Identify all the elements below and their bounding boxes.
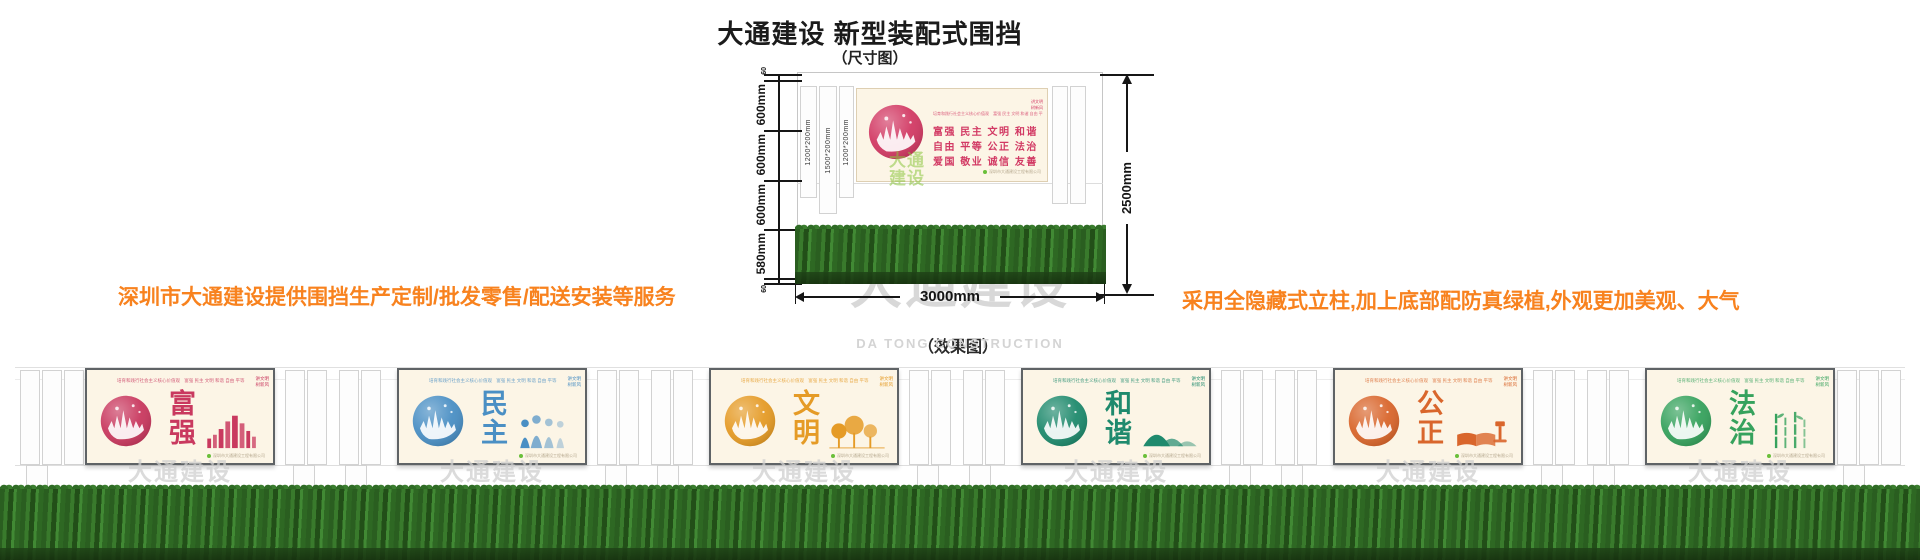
mountains-motif-icon [1141,410,1197,450]
civility-corner-text: 讲文明 树新风 [1031,99,1043,111]
civility-corner-text: 讲文明 树新风 [256,376,270,388]
papercut-emblem-icon [723,394,777,448]
total-height-line [1126,224,1128,284]
fence-post [909,370,929,465]
value-panel-fazhi: 培育和践行社会主义核心价值观 富强 民主 文明 和谐 自由 平等 公正 法治 爱… [1645,368,1835,465]
core-values-billboard: 培育和践行社会主义核心价值观 富强 民主 文明 和谐 自由 平等 公正 法治 爱… [856,88,1048,182]
brand-watermark-small: 大通建设 [888,152,926,188]
artificial-grass-base [0,487,1920,560]
fence-post [64,370,84,465]
fence-post [963,370,983,465]
fence-post [673,370,693,465]
fence-post [985,370,1005,465]
papercut-emblem-icon [1347,394,1401,448]
feature-note: 采用全隐藏式立柱,加上底部配防真绿植,外观更加美观、大气 [1182,285,1740,315]
fence-post [1243,370,1263,465]
fence-post [1587,370,1607,465]
height-segment-label: 60 [757,62,771,80]
fence-post [285,370,305,465]
green-dot-icon [983,170,987,174]
values-row: 富强 民主 文明 和谐 [933,123,1038,138]
bamboo-motif-icon [1765,410,1821,450]
values-slogan: 培育和践行社会主义核心价值观 富强 民主 文明 和谐 自由 平等 公正 法治 爱… [117,378,245,384]
civility-corner-text: 讲文明 树新风 [880,376,894,388]
value-panel-fuqiang: 培育和践行社会主义核心价值观 富强 民主 文明 和谐 自由 平等 公正 法治 爱… [85,368,275,465]
fence-post [361,370,381,465]
fence-post [597,370,617,465]
papercut-emblem-icon [99,394,153,448]
fence-post [651,370,671,465]
value-word: 公正 [1417,390,1447,448]
values-slogan: 培育和践行社会主义核心价值观 富强 民主 文明 和谐 自由 平等 公正 法治 爱… [429,378,557,384]
value-word: 民主 [481,390,511,448]
fence-top-line [15,367,1905,368]
fence-post [1837,370,1857,465]
height-segment-label: 600mm [748,180,774,229]
fence-post [619,370,639,465]
post-size-label: 1500*200mm [825,127,832,174]
values-slogan: 培育和践行社会主义核心价值观 富强 民主 文明 和谐 自由 平等 公正 法治 爱… [1677,378,1805,384]
skyline-motif-icon [205,410,261,450]
values-slogan: 培育和践行社会主义核心价值观 富强 民主 文明 和谐 自由 平等 公正 法治 爱… [741,378,869,384]
fence-post [1859,370,1879,465]
values-row: 自由 平等 公正 法治 [933,138,1038,153]
fence-post [931,370,951,465]
dimension-arrow [795,292,804,302]
height-segment-label: 580mm [748,229,774,278]
page-title: 大通建设 新型装配式围挡 [570,14,1170,51]
dimension-tick [1100,294,1154,296]
post-size-label: 1200*200mm [805,119,812,166]
civility-corner-text: 讲文明 树新风 [1504,376,1518,388]
value-panel-minzhu: 培育和践行社会主义核心价值观 富强 民主 文明 和谐 自由 平等 公正 法治 爱… [397,368,587,465]
fence-post [42,370,62,465]
fence-post [1533,370,1553,465]
fence-post [339,370,359,465]
value-panel-gongzheng: 培育和践行社会主义核心价值观 富强 民主 文明 和谐 自由 平等 公正 法治 爱… [1333,368,1523,465]
value-word: 法治 [1729,390,1759,448]
fence-post [307,370,327,465]
value-word: 和谐 [1105,390,1135,448]
total-height-line [1126,82,1128,152]
height-segment-label: 60 [757,280,771,298]
hidden-post [1052,86,1068,204]
value-word: 文明 [793,390,823,448]
dimension-diagram-label: （尺寸图） [570,47,1170,68]
values-slogan: 培育和践行社会主义核心价值观 富强 民主 文明 和谐 自由 平等 公正 法治 爱… [933,111,1043,117]
values-slogan: 培育和践行社会主义核心价值观 富强 民主 文明 和谐 自由 平等 公正 法治 爱… [1365,378,1493,384]
dimension-arrow [1096,292,1105,302]
poster: 大通建设 新型装配式围挡 （尺寸图） 深圳市大通建设提供围挡生产定制/批发零售/… [0,0,1920,560]
dimension-arrow [1122,74,1132,84]
fence-post [20,370,40,465]
hidden-post [1070,86,1086,204]
company-footer: 深圳市大通建设工程有限公司 [983,169,1041,175]
diagram-hedge [795,227,1106,284]
width-dimension-label: 3000mm [875,288,1025,305]
height-segment-label: 600mm [748,130,774,180]
trees-motif-icon [829,410,885,450]
papercut-emblem-icon [1035,394,1089,448]
papercut-emblem-icon [1659,394,1713,448]
height-dimension-line [778,74,780,284]
values-row: 爱国 敬业 诚信 友善 [933,153,1038,168]
fence-post [1297,370,1317,465]
fence-post [1881,370,1901,465]
dimension-arrow [1122,284,1132,294]
total-height-label: 2500mm [1112,152,1140,224]
civility-corner-text: 讲文明 树新风 [1816,376,1830,388]
value-word: 富强 [169,390,199,448]
papercut-emblem-icon [411,394,465,448]
fence-post [1555,370,1575,465]
hidden-post: 1200*200mm [800,86,817,198]
fence-post [1609,370,1629,465]
book-gavel-motif-icon [1453,410,1509,450]
civility-corner-text: 讲文明 树新风 [1192,376,1206,388]
height-segment-label: 600mm [748,80,774,130]
people-motif-icon [517,410,573,450]
post-size-label: 1200*200mm [843,119,850,166]
values-slogan: 培育和践行社会主义核心价值观 富强 民主 文明 和谐 自由 平等 公正 法治 爱… [1053,378,1181,384]
civility-corner-text: 讲文明 树新风 [568,376,582,388]
fence-post [1275,370,1295,465]
service-note: 深圳市大通建设提供围挡生产定制/批发零售/配送安装等服务 [118,281,676,311]
value-panel-hexie: 培育和践行社会主义核心价值观 富强 民主 文明 和谐 自由 平等 公正 法治 爱… [1021,368,1211,465]
value-panel-wenming: 培育和践行社会主义核心价值观 富强 民主 文明 和谐 自由 平等 公正 法治 爱… [709,368,899,465]
hidden-post: 1200*200mm [839,86,854,198]
fence-post [1221,370,1241,465]
hidden-post: 1500*200mm [819,86,837,214]
